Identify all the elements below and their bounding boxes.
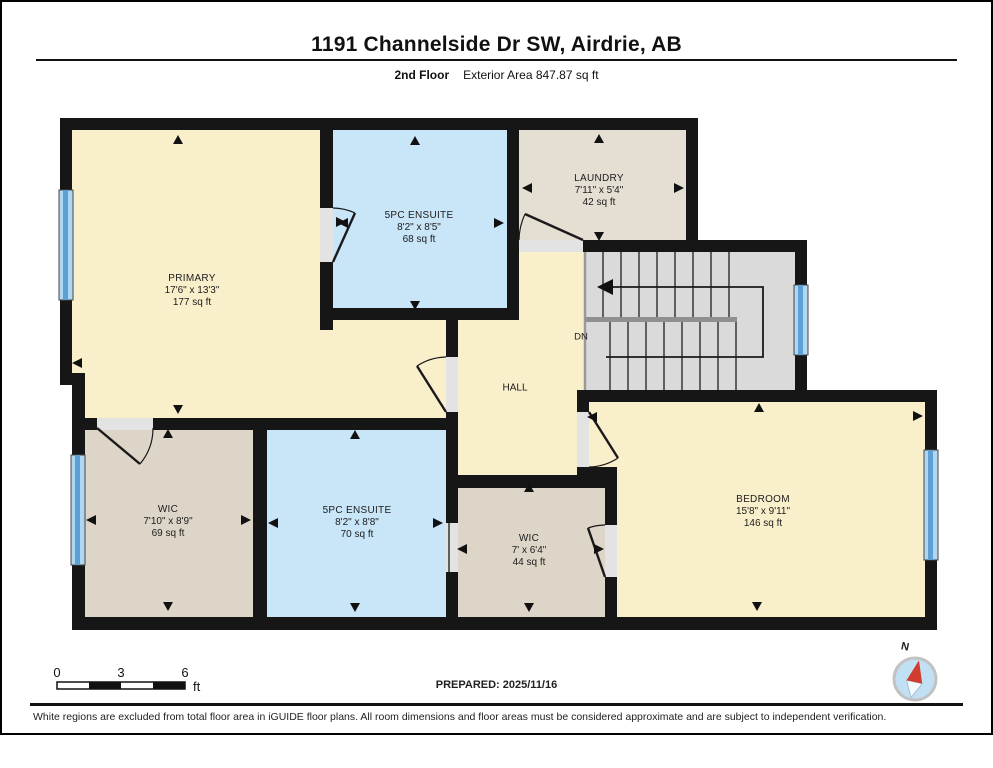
floorplan-drawing bbox=[0, 0, 993, 768]
floorplan-page: 1191 Channelside Dr SW, Airdrie, AB 2nd … bbox=[0, 0, 993, 768]
opening-ensuite-to-wic bbox=[446, 523, 458, 572]
room-label-wic-left: WIC 7'10" x 8'9" 69 sq ft bbox=[143, 504, 192, 540]
window-primary-left bbox=[59, 190, 73, 300]
footer-divider bbox=[30, 703, 963, 706]
room-label-wic-bottom: WIC 7' x 6'4" 44 sq ft bbox=[512, 533, 547, 569]
room-label-bedroom: BEDROOM 15'8" x 9'11" 146 sq ft bbox=[736, 494, 790, 530]
scale-tick-0: 0 bbox=[53, 665, 60, 680]
window-wic-left bbox=[71, 455, 85, 565]
stairs-dn-label: DN bbox=[574, 332, 588, 343]
room-label-laundry: LAUNDRY 7'11" x 5'4" 42 sq ft bbox=[574, 173, 624, 209]
prepared-date-label: PREPARED: 2025/11/16 bbox=[0, 679, 993, 691]
room-label-hall: HALL bbox=[502, 383, 527, 394]
room-label-ensuite-top: 5PC ENSUITE 8'2" x 8'5" 68 sq ft bbox=[385, 210, 454, 246]
room-floor-hall bbox=[446, 320, 585, 488]
scale-tick-6: 6 bbox=[181, 665, 188, 680]
window-bedroom-right bbox=[924, 450, 938, 560]
room-floor-hall-strip bbox=[519, 252, 585, 322]
stairs-landing-edge bbox=[585, 317, 737, 322]
room-floor-primary-lower bbox=[72, 320, 446, 418]
room-label-ensuite-bottom: 5PC ENSUITE 8'2" x 8'8" 70 sq ft bbox=[323, 505, 392, 541]
window-stairs-right bbox=[794, 285, 808, 355]
room-label-primary: PRIMARY 17'6" x 13'3" 177 sq ft bbox=[165, 273, 220, 309]
disclaimer-text: White regions are excluded from total fl… bbox=[33, 711, 960, 723]
scale-tick-3: 3 bbox=[117, 665, 124, 680]
